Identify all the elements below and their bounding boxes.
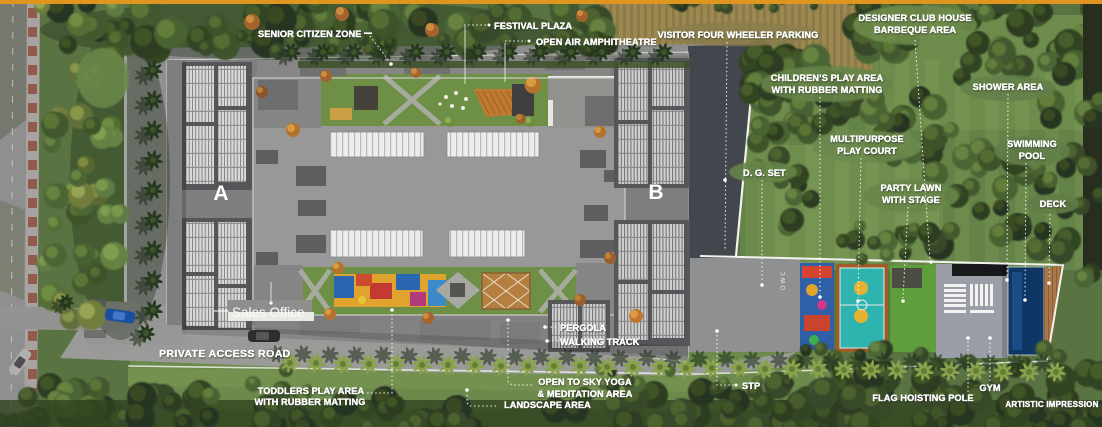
svg-text:LANDSCAPE AREA: LANDSCAPE AREA [504,400,591,410]
svg-text:FESTIVAL PLAZA: FESTIVAL PLAZA [494,21,572,31]
svg-text:OPEN TO SKY YOGA: OPEN TO SKY YOGA [538,377,632,387]
svg-text:STP: STP [742,381,760,391]
svg-text:DECK: DECK [1040,199,1067,209]
svg-text:BARBEQUE AREA: BARBEQUE AREA [874,25,956,35]
svg-text:SENIOR CITIZEN ZONE: SENIOR CITIZEN ZONE [258,29,361,39]
svg-text:GYM: GYM [979,383,1000,393]
svg-text:FLAG HOISTING POLE: FLAG HOISTING POLE [872,393,973,403]
svg-text:WITH RUBBER MATTING: WITH RUBBER MATTING [255,397,366,407]
svg-text:TODDLERS PLAY AREA: TODDLERS PLAY AREA [258,386,365,396]
svg-text:B: B [648,181,663,204]
svg-text:DESIGNER CLUB HOUSE: DESIGNER CLUB HOUSE [858,13,971,23]
svg-text:PARTY LAWN: PARTY LAWN [881,183,942,193]
svg-text:Sales Office: Sales Office [232,305,305,320]
svg-text:PERGOLA: PERGOLA [560,323,606,333]
svg-text:WALKING TRACK: WALKING TRACK [560,337,640,347]
svg-text:SHOWER AREA: SHOWER AREA [973,82,1044,92]
svg-text:OWC: OWC [781,269,787,290]
svg-text:MULTIPURPOSE: MULTIPURPOSE [830,134,904,144]
svg-text:PLAY COURT: PLAY COURT [837,146,897,156]
svg-text:POOL: POOL [1019,151,1046,161]
svg-text:A: A [213,182,228,205]
svg-text:WITH RUBBER MATTING: WITH RUBBER MATTING [772,85,883,95]
svg-text:ARTISTIC IMPRESSION: ARTISTIC IMPRESSION [1005,400,1098,409]
svg-text:VISITOR FOUR WHEELER PARKING: VISITOR FOUR WHEELER PARKING [658,30,819,40]
svg-text:SWIMMING: SWIMMING [1007,139,1057,149]
svg-text:D. G. SET: D. G. SET [743,168,786,178]
svg-text:CHILDREN’S PLAY AREA: CHILDREN’S PLAY AREA [771,73,884,83]
svg-text:PRIVATE ACCESS ROAD: PRIVATE ACCESS ROAD [159,348,291,360]
svg-text:OPEN AIR AMPHITHEATRE: OPEN AIR AMPHITHEATRE [536,37,657,47]
svg-text:& MEDITATION AREA: & MEDITATION AREA [538,389,633,399]
svg-text:WITH STAGE: WITH STAGE [882,195,940,205]
